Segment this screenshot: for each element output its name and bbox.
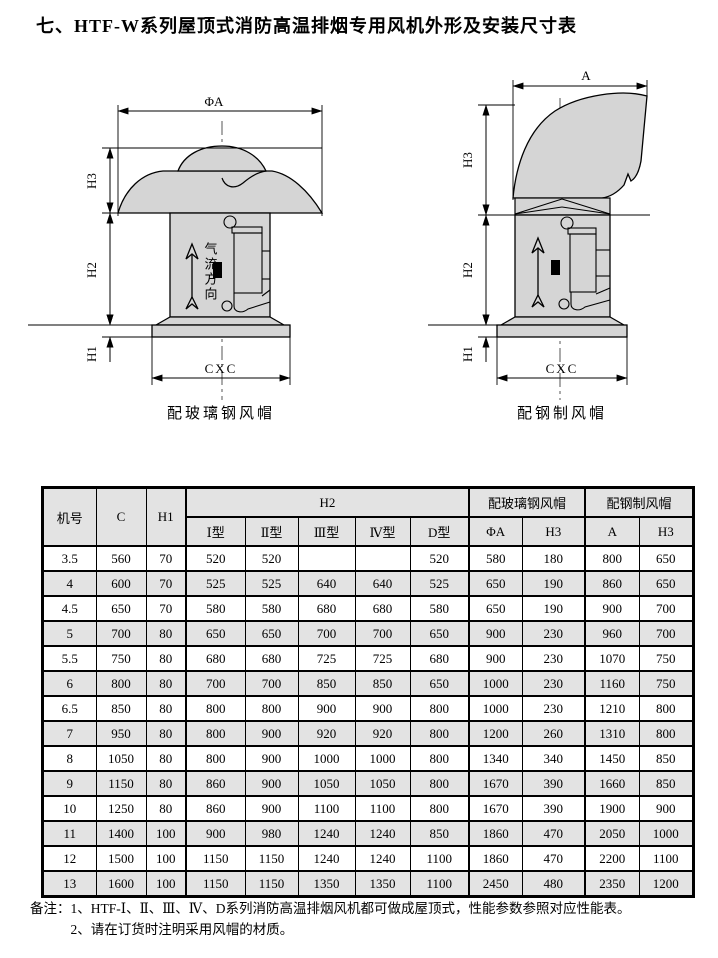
header-frp-h3: H3 [522, 517, 585, 546]
table-cell: 1100 [355, 796, 410, 821]
table-cell: 700 [639, 596, 693, 621]
table-cell: 2200 [585, 846, 639, 871]
table-cell: 920 [298, 721, 355, 746]
steel-fan-diagram: A H3 H2 H1 CXC 配钢制风帽 [420, 66, 710, 428]
table-cell: 80 [146, 721, 186, 746]
fan-skirt [501, 317, 624, 325]
table-row: 68008070070085085065010002301160750 [43, 671, 693, 696]
table-cell: 1250 [96, 796, 146, 821]
table-cell: 6.5 [43, 696, 96, 721]
dim-h1-label: H1 [460, 346, 475, 362]
table-cell: 650 [410, 671, 469, 696]
table-row: 570080650650700700650900230960700 [43, 621, 693, 646]
table-cell: 5 [43, 621, 96, 646]
table-cell: 650 [639, 546, 693, 571]
table-cell: 1160 [585, 671, 639, 696]
table-cell: 800 [410, 746, 469, 771]
note-line-1: 1、HTF-Ⅰ、Ⅱ、Ⅲ、Ⅳ、D系列消防高温排烟风机都可做成屋顶式，性能参数参照对… [71, 898, 631, 919]
table-cell: 2350 [585, 871, 639, 896]
table-cell: 850 [639, 771, 693, 796]
dim-h2-label: H2 [460, 262, 475, 278]
table-row: 6.58508080080090090080010002301210800 [43, 696, 693, 721]
table-cell: 6 [43, 671, 96, 696]
table-cell: 700 [186, 671, 245, 696]
table-cell: 390 [522, 771, 585, 796]
table-cell: 900 [469, 621, 522, 646]
table-body: 3.55607052052052058018080065046007052552… [43, 546, 693, 896]
table-cell: 600 [96, 571, 146, 596]
table-cell: 900 [245, 771, 298, 796]
table-cell: 860 [186, 796, 245, 821]
table-cell: 960 [585, 621, 639, 646]
table-cell: 1240 [298, 846, 355, 871]
table-cell: 800 [245, 696, 298, 721]
table-cell: 230 [522, 671, 585, 696]
dim-phiA-label: ΦA [205, 94, 225, 109]
table-cell: 480 [522, 871, 585, 896]
table-cell: 7 [43, 721, 96, 746]
table-cell: 650 [469, 571, 522, 596]
table-cell: 1600 [96, 871, 146, 896]
table-cell: 650 [469, 596, 522, 621]
table-cell: 1660 [585, 771, 639, 796]
table-cell: 12 [43, 846, 96, 871]
table-cell: 70 [146, 596, 186, 621]
table-cell: 2450 [469, 871, 522, 896]
table-cell: 4.5 [43, 596, 96, 621]
table-cell: 1050 [355, 771, 410, 796]
table-cell: 1200 [469, 721, 522, 746]
frp-cap-shape [118, 171, 322, 213]
table-cell: 700 [298, 621, 355, 646]
table-cell: 1150 [186, 846, 245, 871]
table-cell: 80 [146, 746, 186, 771]
table-cell: 470 [522, 821, 585, 846]
table-cell: 850 [639, 746, 693, 771]
table-cell: 1200 [639, 871, 693, 896]
table-row: 91150808609001050105080016703901660850 [43, 771, 693, 796]
notes-prefix: 备注： [30, 898, 71, 940]
table-cell: 800 [410, 771, 469, 796]
header-fan-no: 机号 [43, 488, 96, 546]
page-title: 七、HTF-W系列屋顶式消防高温排烟专用风机外形及安装尺寸表 [36, 12, 577, 38]
table-cell: 650 [639, 571, 693, 596]
table-cell: 1150 [96, 771, 146, 796]
header-h1: H1 [146, 488, 186, 546]
table-cell: 525 [186, 571, 245, 596]
table-cell: 580 [245, 596, 298, 621]
table-cell: 230 [522, 646, 585, 671]
table-cell: 750 [639, 671, 693, 696]
dim-h3-label: H3 [460, 152, 475, 168]
table-cell: 800 [410, 721, 469, 746]
header-type-4: Ⅳ型 [355, 517, 410, 546]
fan-flange [152, 325, 290, 337]
table-cell: 800 [186, 696, 245, 721]
table-cell: 850 [355, 671, 410, 696]
table-cell: 520 [245, 546, 298, 571]
dim-h3-label: H3 [84, 173, 99, 189]
table-cell: 1050 [298, 771, 355, 796]
table-cell: 11 [43, 821, 96, 846]
table-cell: 900 [245, 796, 298, 821]
table-row: 3.556070520520520580180800650 [43, 546, 693, 571]
header-group-h2: H2 [186, 488, 469, 517]
table-cell: 525 [245, 571, 298, 596]
frp-caption: 配玻璃钢风帽 [167, 405, 275, 422]
table-cell: 70 [146, 571, 186, 596]
table-cell: 520 [410, 546, 469, 571]
table-cell: 1000 [298, 746, 355, 771]
table-cell: 800 [410, 796, 469, 821]
table-cell: 1100 [298, 796, 355, 821]
dimension-table: 机号 C H1 H2 配玻璃钢风帽 配钢制风帽 Ⅰ型 Ⅱ型 Ⅲ型 Ⅳ型 D型 Φ… [42, 487, 694, 897]
table-cell: 1240 [355, 846, 410, 871]
table-cell: 1150 [186, 871, 245, 896]
table-cell: 4 [43, 571, 96, 596]
table-cell: 1150 [245, 846, 298, 871]
table-cell: 1350 [355, 871, 410, 896]
table-cell [298, 546, 355, 571]
table-cell: 900 [186, 821, 245, 846]
table-cell: 650 [245, 621, 298, 646]
table-cell: 1100 [410, 871, 469, 896]
table-cell: 750 [639, 646, 693, 671]
table-cell: 850 [410, 821, 469, 846]
table-cell: 725 [298, 646, 355, 671]
table-cell: 850 [96, 696, 146, 721]
table-cell: 860 [186, 771, 245, 796]
table-cell: 1000 [639, 821, 693, 846]
table-cell: 1000 [355, 746, 410, 771]
header-group-steel-cap: 配钢制风帽 [585, 488, 693, 517]
table-cell: 100 [146, 871, 186, 896]
table-cell: 100 [146, 821, 186, 846]
table-cell: 1150 [245, 871, 298, 896]
table-cell: 900 [469, 646, 522, 671]
table-cell: 10 [43, 796, 96, 821]
table-cell: 9 [43, 771, 96, 796]
table-cell: 800 [410, 696, 469, 721]
dim-a-label: A [581, 68, 591, 83]
table-cell: 680 [355, 596, 410, 621]
table-cell: 100 [146, 846, 186, 871]
table-cell: 520 [186, 546, 245, 571]
table-cell: 900 [245, 746, 298, 771]
table-cell: 900 [639, 796, 693, 821]
table-cell: 1210 [585, 696, 639, 721]
table-cell: 980 [245, 821, 298, 846]
table-cell: 1670 [469, 771, 522, 796]
table-cell: 680 [410, 646, 469, 671]
table-cell: 1500 [96, 846, 146, 871]
table-cell: 1900 [585, 796, 639, 821]
table-cell: 1340 [469, 746, 522, 771]
table-cell: 1240 [355, 821, 410, 846]
table-cell: 920 [355, 721, 410, 746]
dim-h1-label: H1 [84, 346, 99, 362]
table-cell: 8 [43, 746, 96, 771]
table-row: 4.565070580580680680580650190900700 [43, 596, 693, 621]
table-cell: 1240 [298, 821, 355, 846]
table-cell: 2050 [585, 821, 639, 846]
table-cell: 1000 [469, 671, 522, 696]
table-cell: 650 [186, 621, 245, 646]
table-cell: 1050 [96, 746, 146, 771]
motor-mount [551, 260, 560, 275]
steel-cap-shape [513, 93, 647, 198]
table-cell: 13 [43, 871, 96, 896]
header-type-1: Ⅰ型 [186, 517, 245, 546]
table-cell: 1450 [585, 746, 639, 771]
table-row: 81050808009001000100080013403401450850 [43, 746, 693, 771]
table-cell: 1000 [469, 696, 522, 721]
table-row: 460070525525640640525650190860650 [43, 571, 693, 596]
table-cell: 680 [245, 646, 298, 671]
table-cell: 1100 [410, 846, 469, 871]
table-row: 101250808609001100110080016703901900900 [43, 796, 693, 821]
table-row: 79508080090092092080012002601310800 [43, 721, 693, 746]
header-group-frp-cap: 配玻璃钢风帽 [469, 488, 585, 517]
page: 七、HTF-W系列屋顶式消防高温排烟专用风机外形及安装尺寸表 [0, 0, 718, 958]
table-cell: 640 [298, 571, 355, 596]
notes-lines: 1、HTF-Ⅰ、Ⅱ、Ⅲ、Ⅳ、D系列消防高温排烟风机都可做成屋顶式，性能参数参照对… [71, 898, 631, 940]
table-cell: 700 [245, 671, 298, 696]
table-cell: 750 [96, 646, 146, 671]
dim-cxc-label: CXC [205, 361, 238, 376]
table-cell: 1860 [469, 821, 522, 846]
table-cell: 470 [522, 846, 585, 871]
header-steel-h3: H3 [639, 517, 693, 546]
table-cell: 800 [96, 671, 146, 696]
table-cell: 1350 [298, 871, 355, 896]
table-cell: 230 [522, 621, 585, 646]
table-cell: 1100 [639, 846, 693, 871]
table-row: 1114001009009801240124085018604702050100… [43, 821, 693, 846]
header-steel-a: A [585, 517, 639, 546]
table-cell: 680 [186, 646, 245, 671]
table-cell [355, 546, 410, 571]
dim-h2-label: H2 [84, 262, 99, 278]
table-cell: 725 [355, 646, 410, 671]
table-cell: 1310 [585, 721, 639, 746]
table-cell: 80 [146, 646, 186, 671]
table-cell: 700 [96, 621, 146, 646]
table-cell: 560 [96, 546, 146, 571]
frp-cap-dome [178, 146, 266, 171]
steel-caption: 配钢制风帽 [517, 405, 607, 422]
table-cell: 900 [298, 696, 355, 721]
table-cell: 650 [96, 596, 146, 621]
header-c: C [96, 488, 146, 546]
table-cell: 525 [410, 571, 469, 596]
table-cell: 70 [146, 546, 186, 571]
header-type-d: D型 [410, 517, 469, 546]
table-cell: 340 [522, 746, 585, 771]
table-cell: 80 [146, 621, 186, 646]
table-cell: 80 [146, 771, 186, 796]
table-cell: 800 [639, 696, 693, 721]
frp-fan-diagram: 气流方向 ΦA H3 H2 H1 CXC 配玻璃钢风帽 [20, 66, 350, 428]
header-type-2: Ⅱ型 [245, 517, 298, 546]
table-cell: 800 [186, 721, 245, 746]
table-cell: 580 [186, 596, 245, 621]
table-cell: 900 [585, 596, 639, 621]
table-cell: 900 [355, 696, 410, 721]
header-type-3: Ⅲ型 [298, 517, 355, 546]
table-cell: 680 [298, 596, 355, 621]
table-cell: 190 [522, 596, 585, 621]
table-cell: 580 [410, 596, 469, 621]
table-cell: 260 [522, 721, 585, 746]
table-cell: 180 [522, 546, 585, 571]
table-cell: 80 [146, 796, 186, 821]
dim-cxc-label: CXC [546, 361, 579, 376]
table-cell: 80 [146, 696, 186, 721]
table-cell: 1070 [585, 646, 639, 671]
table-cell: 700 [639, 621, 693, 646]
table-cell: 860 [585, 571, 639, 596]
table-cell: 650 [410, 621, 469, 646]
airflow-label: 气流方向 [203, 241, 218, 302]
fan-flange [497, 325, 627, 337]
fan-skirt [156, 317, 284, 325]
steel-fan-drawing: A H3 H2 H1 CXC 配钢制风帽 [420, 66, 710, 428]
table-cell: 700 [355, 621, 410, 646]
table-cell: 5.5 [43, 646, 96, 671]
table-cell: 850 [298, 671, 355, 696]
table-row: 1316001001150115013501350110024504802350… [43, 871, 693, 896]
table-cell: 80 [146, 671, 186, 696]
table-cell: 1400 [96, 821, 146, 846]
notes: 备注： 1、HTF-Ⅰ、Ⅱ、Ⅲ、Ⅳ、D系列消防高温排烟风机都可做成屋顶式，性能参… [30, 898, 702, 940]
table-cell: 1860 [469, 846, 522, 871]
table-cell: 800 [639, 721, 693, 746]
header-phi-a: ΦA [469, 517, 522, 546]
table-cell: 3.5 [43, 546, 96, 571]
table-cell: 190 [522, 571, 585, 596]
table-row: 1215001001150115012401240110018604702200… [43, 846, 693, 871]
frp-fan-drawing: 气流方向 ΦA H3 H2 H1 CXC 配玻璃钢风帽 [20, 66, 350, 428]
table-cell: 580 [469, 546, 522, 571]
table-row: 5.5750806806807257256809002301070750 [43, 646, 693, 671]
table-cell: 900 [245, 721, 298, 746]
table-cell: 640 [355, 571, 410, 596]
truss-band [515, 198, 610, 215]
table-cell: 390 [522, 796, 585, 821]
table-cell: 800 [186, 746, 245, 771]
table-cell: 800 [585, 546, 639, 571]
note-line-2: 2、请在订货时注明采用风帽的材质。 [71, 919, 631, 940]
table-cell: 1670 [469, 796, 522, 821]
table-cell: 230 [522, 696, 585, 721]
table-cell: 950 [96, 721, 146, 746]
